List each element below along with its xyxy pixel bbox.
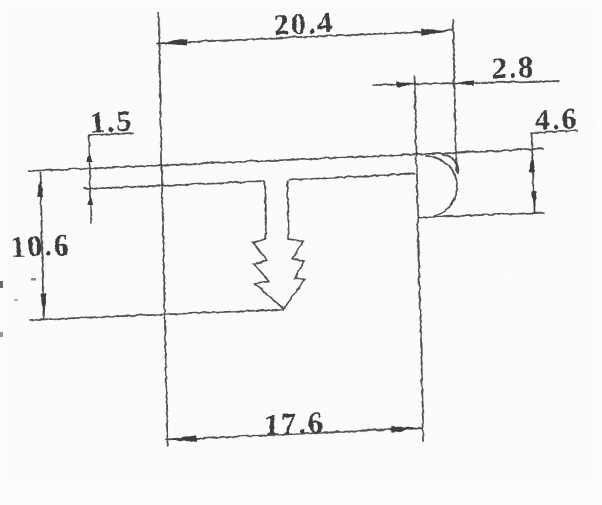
svg-text:10.6: 10.6 bbox=[9, 228, 71, 264]
svg-text:17.6: 17.6 bbox=[263, 406, 325, 442]
svg-text:2.8: 2.8 bbox=[491, 50, 536, 85]
